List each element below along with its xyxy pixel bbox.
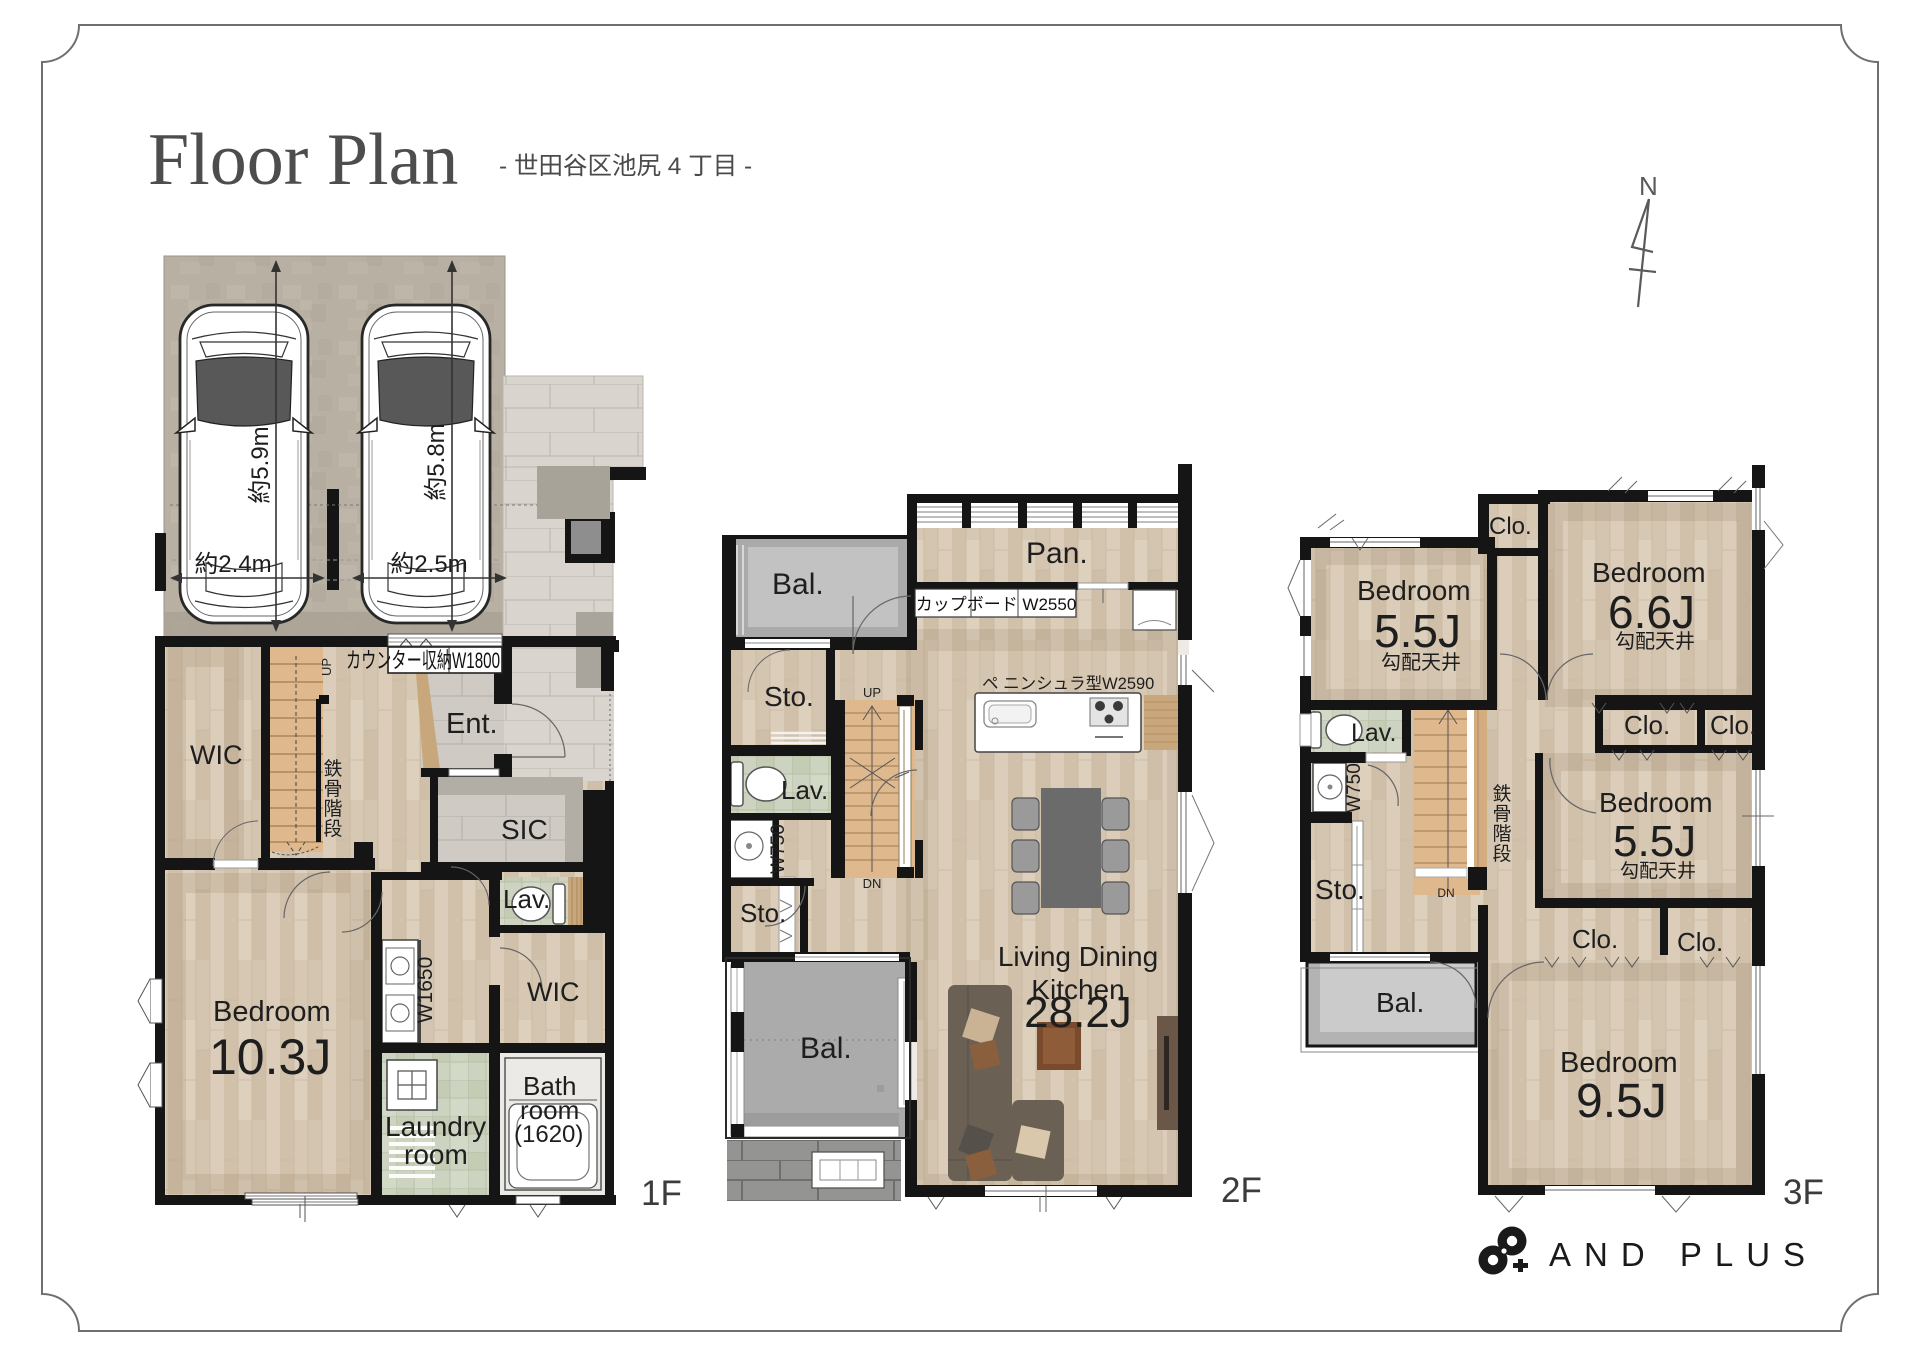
svg-text:UP: UP — [319, 658, 334, 676]
svg-text:Living Dining: Living Dining — [998, 941, 1158, 972]
svg-text:1F: 1F — [641, 1174, 682, 1213]
svg-text:10.3J: 10.3J — [209, 1029, 331, 1085]
svg-text:- 世田谷区池尻 4 丁目 -: - 世田谷区池尻 4 丁目 - — [499, 152, 752, 180]
svg-text:Clo.: Clo. — [1489, 513, 1532, 540]
svg-text:Clo.: Clo. — [1572, 924, 1618, 954]
svg-text:DN: DN — [863, 876, 882, 891]
svg-text:勾配天井: 勾配天井 — [1620, 860, 1696, 882]
svg-text:カップボード W2550: カップボード W2550 — [916, 595, 1077, 614]
svg-text:DN: DN — [1437, 886, 1454, 900]
svg-text:Sto.: Sto. — [1315, 874, 1365, 905]
svg-text:Floor Plan: Floor Plan — [148, 119, 458, 201]
svg-text:約5.9m: 約5.9m — [247, 426, 274, 503]
svg-text:約2.5m: 約2.5m — [390, 551, 467, 578]
svg-text:約5.8m: 約5.8m — [423, 423, 450, 500]
svg-text:Bal.: Bal. — [800, 1032, 852, 1065]
svg-text:W1650: W1650 — [414, 957, 437, 1024]
svg-text:room: room — [404, 1139, 468, 1170]
svg-text:ペ ニンシュラ型W2590: ペ ニンシュラ型W2590 — [982, 674, 1154, 693]
svg-text:Bedroom: Bedroom — [1357, 575, 1471, 606]
svg-text:勾配天井: 勾配天井 — [1615, 630, 1695, 653]
svg-text:Lav.: Lav. — [781, 775, 828, 805]
svg-text:5.5J: 5.5J — [1613, 817, 1696, 866]
svg-text:Lav.: Lav. — [1351, 719, 1396, 747]
svg-text:WIC: WIC — [527, 977, 579, 1007]
svg-text:カウンター収納W1800: カウンター収納W1800 — [346, 648, 500, 673]
svg-text:2F: 2F — [1221, 1171, 1262, 1210]
svg-text:N: N — [1639, 171, 1658, 201]
svg-text:Clo.: Clo. — [1677, 927, 1723, 957]
svg-text:Lav.: Lav. — [503, 884, 550, 914]
svg-text:(1620): (1620) — [514, 1121, 583, 1148]
svg-text:勾配天井: 勾配天井 — [1381, 651, 1461, 674]
svg-text:W750: W750 — [768, 824, 789, 874]
svg-text:Bal.: Bal. — [1376, 987, 1424, 1018]
svg-text:Sto.: Sto. — [764, 681, 814, 712]
svg-text:Bedroom: Bedroom — [213, 996, 331, 1028]
svg-text:9.5J: 9.5J — [1576, 1075, 1667, 1128]
svg-text:28.2J: 28.2J — [1024, 988, 1132, 1037]
svg-text:鉄骨階段: 鉄骨階段 — [1492, 783, 1511, 865]
svg-text:3F: 3F — [1783, 1173, 1824, 1212]
svg-text:鉄骨階段: 鉄骨階段 — [323, 758, 342, 840]
svg-text:Bal.: Bal. — [772, 568, 824, 601]
svg-text:SIC: SIC — [501, 814, 548, 845]
svg-text:WIC: WIC — [190, 740, 242, 770]
svg-text:約2.4m: 約2.4m — [194, 551, 271, 578]
svg-text:5.5J: 5.5J — [1374, 605, 1461, 657]
svg-text:Clo.: Clo. — [1710, 710, 1756, 740]
svg-text:AND PLUS: AND PLUS — [1549, 1236, 1818, 1273]
svg-text:Clo.: Clo. — [1624, 710, 1670, 740]
svg-text:W750: W750 — [1344, 763, 1365, 813]
svg-text:Sto.: Sto. — [740, 898, 786, 928]
svg-text:Bedroom: Bedroom — [1592, 557, 1706, 588]
svg-text:Pan.: Pan. — [1026, 537, 1088, 570]
svg-text:Bedroom: Bedroom — [1599, 787, 1713, 818]
svg-text:UP: UP — [863, 685, 881, 700]
svg-text:Laundry: Laundry — [385, 1111, 486, 1142]
svg-text:Ent.: Ent. — [446, 708, 498, 740]
